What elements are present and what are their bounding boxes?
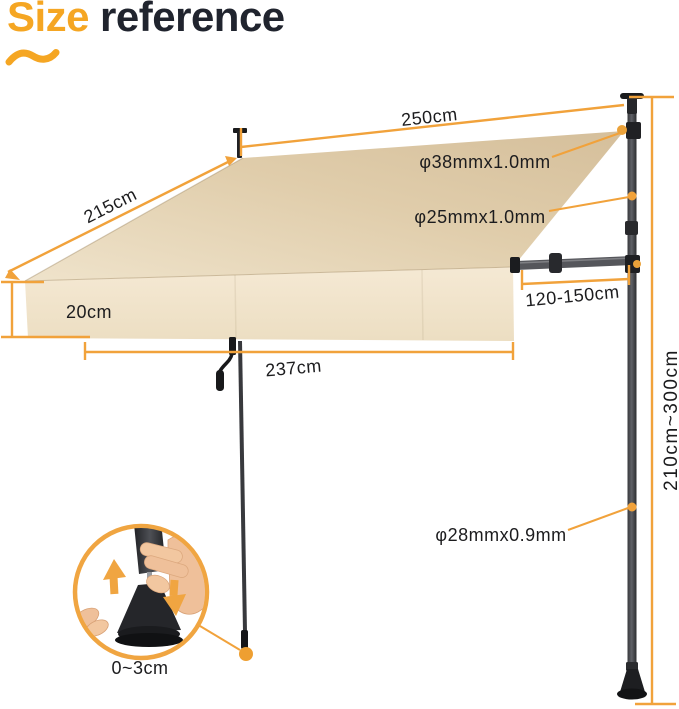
leader-dot-phi28 xyxy=(628,503,637,512)
crossbar-adjuster-knob xyxy=(549,253,562,273)
crank-grip xyxy=(216,370,224,391)
crank-assembly xyxy=(216,337,253,661)
valance-seam-1 xyxy=(235,275,236,339)
awning-diagram: 250cm 215cm φ38mmx1.0mm φ25mmx1.0mm 120-… xyxy=(0,0,679,709)
drop-rod xyxy=(240,341,245,632)
foot-base xyxy=(617,689,647,700)
crossbar-front-clamp xyxy=(510,257,520,273)
dim-upper-pole-label: φ38mmx1.0mm xyxy=(419,152,550,172)
dim-valance-label: 20cm xyxy=(66,302,112,322)
crossbar-knob xyxy=(633,260,641,268)
dim-top-width-label: 250cm xyxy=(400,104,458,130)
dim-lower-pole-label: φ28mmx0.9mm xyxy=(435,525,566,545)
dim-height-label: 210cm~300cm xyxy=(661,349,679,491)
dim-mid-pole-label: φ25mmx1.0mm xyxy=(414,207,545,227)
telescopic-pole xyxy=(617,93,647,700)
crank-arm xyxy=(220,354,232,371)
rod-end-ball xyxy=(239,647,253,661)
dim-front-width-label: 237cm xyxy=(264,356,322,381)
dim-crossbar-label: 120-150cm xyxy=(524,282,620,311)
valance-seam-2 xyxy=(422,270,423,340)
leader-dot-phi25 xyxy=(628,192,637,201)
inset-foot-base-bottom xyxy=(115,633,183,647)
foot-adjustment-inset: 0~3cm xyxy=(70,521,214,678)
up-arrow-shaft xyxy=(110,578,119,594)
foot-adjust-label: 0~3cm xyxy=(111,658,168,678)
size-reference-panel: Sizereference xyxy=(0,0,679,709)
pole-top-collar xyxy=(627,98,637,114)
rod-tip xyxy=(241,630,248,649)
pole-joint xyxy=(625,221,638,235)
awning-mount-clamp xyxy=(626,122,641,139)
pole-shaft xyxy=(628,99,637,672)
leader-inset xyxy=(195,623,240,650)
leader-phi28 xyxy=(568,508,628,530)
down-arrow-shaft xyxy=(169,580,178,597)
crossbar xyxy=(510,253,641,273)
